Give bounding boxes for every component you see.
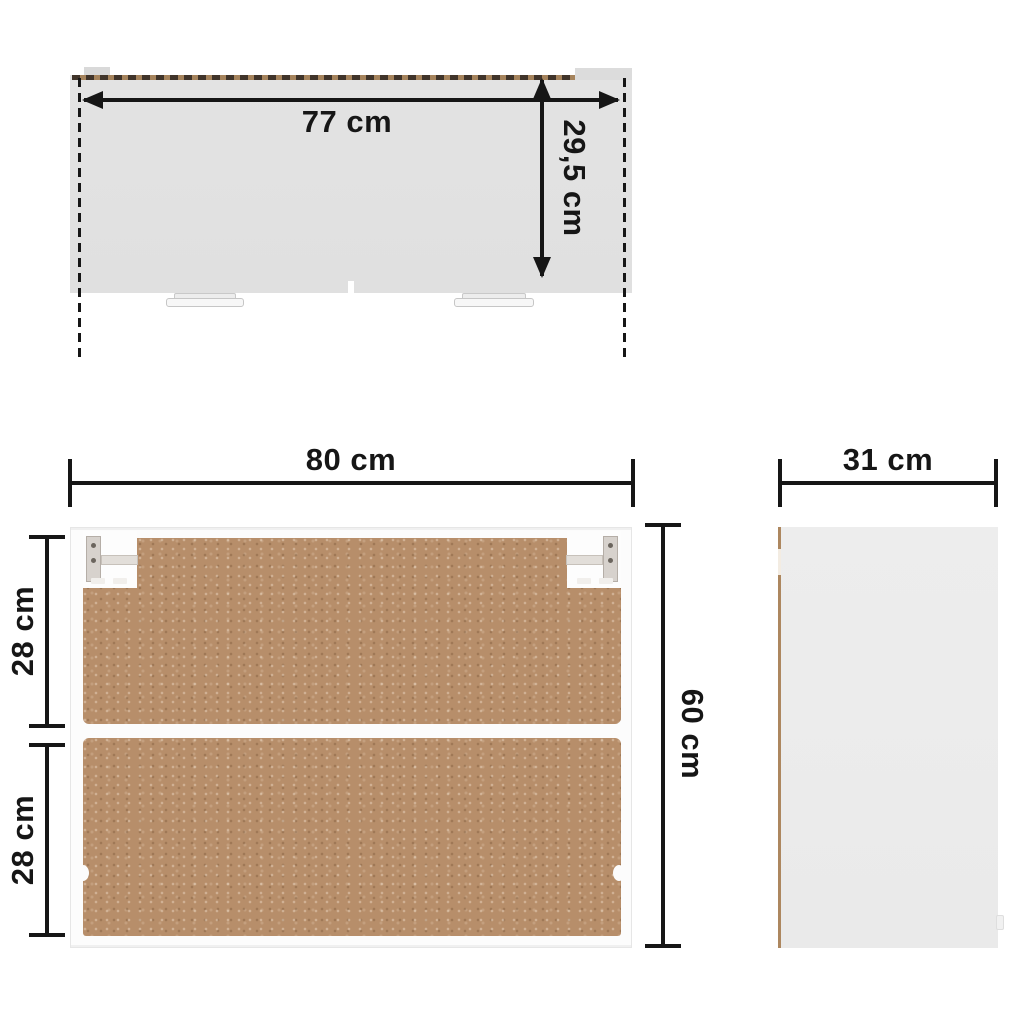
- cam-notch-left: [77, 865, 89, 881]
- top-view-depth-arrow: [540, 80, 544, 276]
- hinge-screw: [91, 558, 96, 563]
- front-width-dimension-line: [68, 481, 635, 485]
- lower-compartment-label: 28 cm: [5, 795, 41, 885]
- upper-compartment-dimension-line: [45, 535, 49, 728]
- top-view-hinge-right: [454, 293, 534, 306]
- top-view-hinge-left: [166, 293, 244, 306]
- front-view-cabinet: [70, 527, 632, 948]
- hinge-tab: [91, 578, 105, 584]
- dimension-diagram: 77 cm 29,5 cm 80 cm 60 cm 28 cm 28 cm: [0, 0, 1024, 1024]
- hinge-bracket-right: [567, 531, 621, 588]
- lower-compartment-dimension-line: [45, 743, 49, 937]
- side-depth-dimension-line: [778, 481, 998, 485]
- top-view-width-label: 77 cm: [302, 104, 392, 140]
- hinge-arm: [101, 555, 138, 565]
- cam-notch-right: [613, 865, 625, 881]
- hinge-tab: [599, 578, 613, 584]
- upper-back-panel: [83, 538, 621, 724]
- hinge-screw: [91, 543, 96, 548]
- side-back-edge: [778, 527, 781, 948]
- hinge-screw: [608, 558, 613, 563]
- front-width-label: 80 cm: [306, 442, 396, 478]
- hinge-tab: [577, 578, 591, 584]
- side-back-edge-gap: [778, 549, 781, 575]
- hinge-arm: [566, 555, 603, 565]
- side-view-panel: [778, 527, 998, 948]
- top-view-dashed-line-right: [623, 78, 626, 363]
- top-view-depth-label: 29,5 cm: [556, 119, 592, 236]
- hinge-screw: [608, 543, 613, 548]
- hinge-bracket-left: [83, 531, 137, 588]
- upper-compartment-label: 28 cm: [5, 586, 41, 676]
- side-depth-label: 31 cm: [843, 442, 933, 478]
- hinge-tab: [113, 578, 127, 584]
- top-view-dashed-line-left: [78, 78, 81, 363]
- top-view-center-notch: [348, 281, 354, 293]
- lower-back-panel: [83, 738, 621, 936]
- top-view-wood-edge-strip: [72, 75, 580, 80]
- front-height-dimension-line: [661, 523, 665, 948]
- side-cam-tab: [996, 915, 1004, 930]
- front-height-label: 60 cm: [674, 689, 710, 779]
